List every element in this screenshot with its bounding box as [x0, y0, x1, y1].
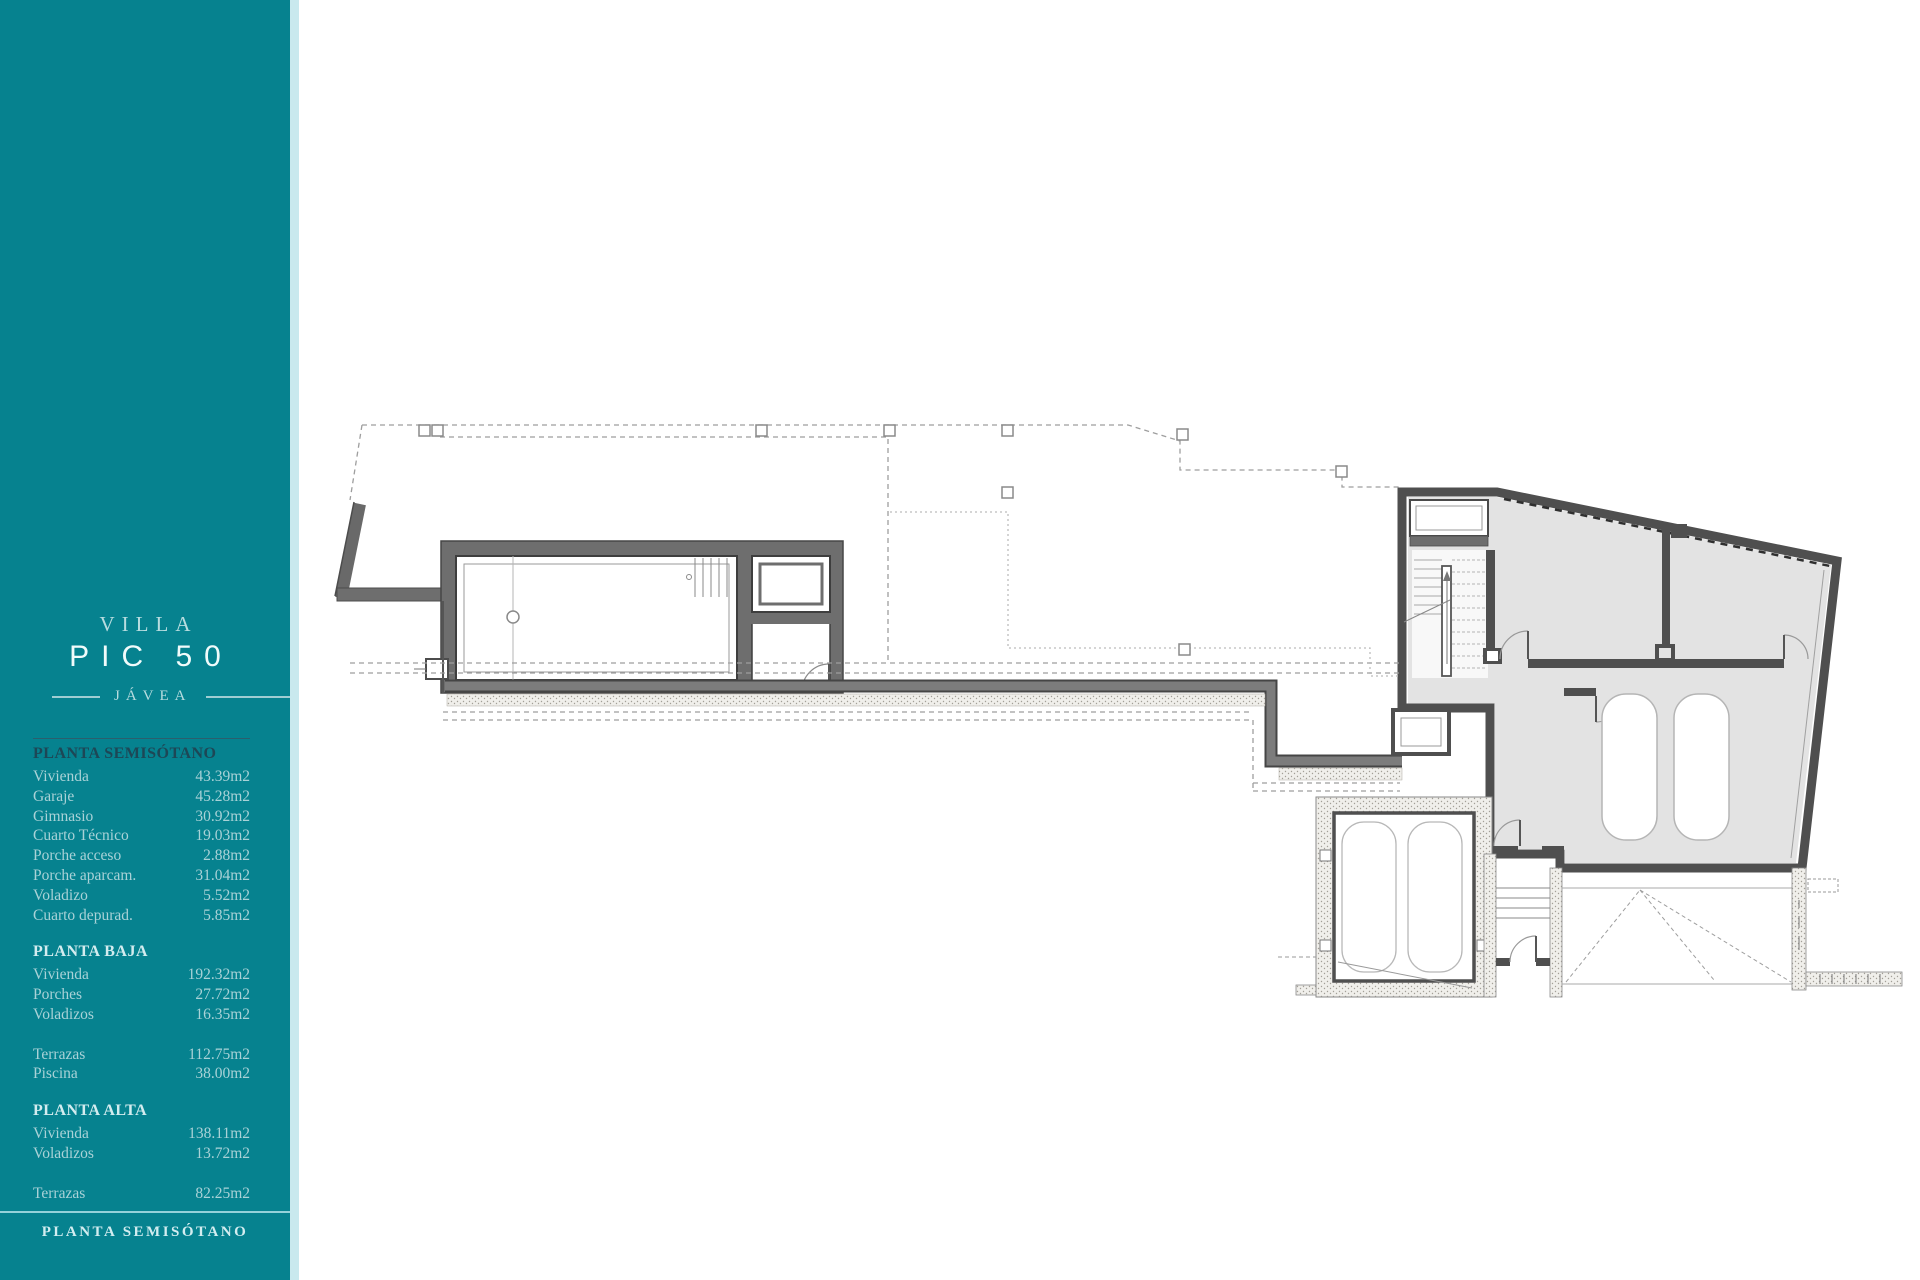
skylight-opening	[1602, 694, 1657, 840]
villa-label: VILLA	[0, 612, 290, 637]
section-title: PLANTA SEMISÓTANO	[33, 743, 250, 765]
row-value: 38.00m2	[195, 1064, 250, 1084]
area-row: Voladizos16.35m2	[33, 1005, 250, 1025]
area-row: Porches27.72m2	[33, 985, 250, 1005]
row-spacer	[33, 1025, 250, 1045]
area-row: Gimnasio30.92m2	[33, 807, 250, 827]
area-row: Vivienda43.39m2	[33, 767, 250, 787]
area-row: Porche acceso2.88m2	[33, 846, 250, 866]
area-list: PLANTA SEMISÓTANO Vivienda43.39m2 Garaje…	[33, 738, 250, 1203]
section-planta-alta: PLANTA ALTA Vivienda138.11m2 Voladizos13…	[33, 1100, 250, 1203]
row-label: Terrazas	[33, 1184, 85, 1204]
row-label: Terrazas	[33, 1045, 85, 1065]
row-label: Gimnasio	[33, 807, 93, 827]
row-value: 192.32m2	[188, 965, 250, 985]
row-label: Garaje	[33, 787, 74, 807]
area-row: Voladizo5.52m2	[33, 886, 250, 906]
location-dash-right	[206, 696, 291, 698]
row-label: Voladizo	[33, 886, 88, 906]
row-label: Vivienda	[33, 767, 89, 787]
row-value: 27.72m2	[195, 985, 250, 1005]
row-value: 30.92m2	[195, 807, 250, 827]
row-label: Voladizos	[33, 1005, 94, 1025]
pool-area	[335, 502, 843, 693]
area-row: Garaje45.28m2	[33, 787, 250, 807]
area-row: Cuarto Técnico19.03m2	[33, 826, 250, 846]
section-title: PLANTA ALTA	[33, 1100, 250, 1122]
sidebar-edge-strip	[290, 0, 299, 1280]
current-floor-label: PLANTA SEMISÓTANO	[0, 1224, 290, 1241]
row-value: 19.03m2	[195, 826, 250, 846]
row-label: Piscina	[33, 1064, 78, 1084]
row-label: Cuarto Técnico	[33, 826, 129, 846]
row-label: Porche acceso	[33, 846, 121, 866]
section-planta-semisotano: PLANTA SEMISÓTANO Vivienda43.39m2 Garaje…	[33, 743, 250, 925]
row-value: 138.11m2	[188, 1124, 250, 1144]
row-value: 13.72m2	[195, 1144, 250, 1164]
row-label: Cuarto depurad.	[33, 906, 133, 926]
brand-block: VILLA PIC 50 JÁVEA	[0, 612, 290, 705]
area-row: Porche aparcam.31.04m2	[33, 866, 250, 886]
row-value: 16.35m2	[195, 1005, 250, 1025]
area-row: Vivienda192.32m2	[33, 965, 250, 985]
skylight-opening	[1674, 694, 1729, 840]
section-title: PLANTA BAJA	[33, 941, 250, 963]
footer-divider	[0, 1211, 299, 1213]
pool-drain-icon	[507, 611, 519, 623]
row-value: 112.75m2	[188, 1045, 250, 1065]
garage	[1278, 797, 1492, 997]
area-row: Cuarto depurad.5.85m2	[33, 906, 250, 926]
row-label: Vivienda	[33, 1124, 89, 1144]
model-label: PIC 50	[0, 640, 290, 674]
row-label: Vivienda	[33, 965, 89, 985]
location-label: JÁVEA	[100, 688, 206, 705]
carport-pergola	[1562, 868, 1902, 990]
location-row: JÁVEA	[0, 688, 290, 705]
row-value: 5.52m2	[203, 886, 250, 906]
area-row: Piscina38.00m2	[33, 1064, 250, 1084]
row-value: 43.39m2	[195, 767, 250, 787]
side-corridor-stairs	[1484, 854, 1562, 997]
row-label: Voladizos	[33, 1144, 94, 1164]
row-value: 82.25m2	[195, 1184, 250, 1204]
location-dash-left	[52, 696, 100, 698]
row-value: 45.28m2	[195, 787, 250, 807]
row-spacer	[33, 1164, 250, 1184]
area-row: Terrazas112.75m2	[33, 1045, 250, 1065]
row-value: 31.04m2	[195, 866, 250, 886]
area-list-rule	[33, 738, 250, 739]
area-row: Vivienda138.11m2	[33, 1124, 250, 1144]
row-value: 2.88m2	[203, 846, 250, 866]
stairwell	[1404, 550, 1488, 678]
row-label: Porches	[33, 985, 82, 1005]
row-value: 5.85m2	[203, 906, 250, 926]
door-swing-arc	[1510, 936, 1536, 962]
sidebar: VILLA PIC 50 JÁVEA PLANTA SEMISÓTANO Viv…	[0, 0, 290, 1280]
area-row: Voladizos13.72m2	[33, 1144, 250, 1164]
area-row: Terrazas82.25m2	[33, 1184, 250, 1204]
page: VILLA PIC 50 JÁVEA PLANTA SEMISÓTANO Viv…	[0, 0, 1920, 1280]
row-label: Porche aparcam.	[33, 866, 136, 886]
section-planta-baja: PLANTA BAJA Vivienda192.32m2 Porches27.7…	[33, 941, 250, 1084]
